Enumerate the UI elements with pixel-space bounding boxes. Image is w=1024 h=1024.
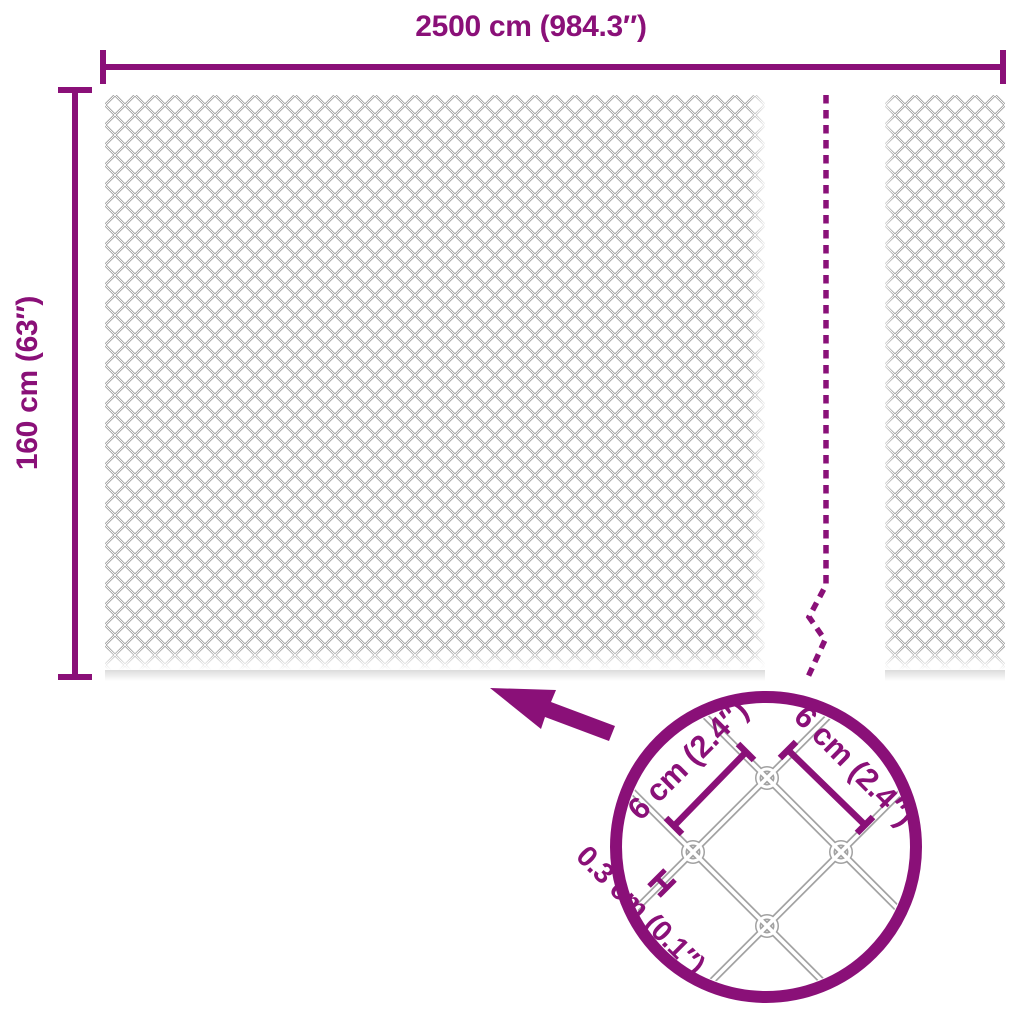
mesh-strip-left-edge-fade (885, 95, 895, 673)
mesh-bottom-shadow (105, 670, 765, 681)
mesh-panel-continuation (885, 95, 1005, 672)
height-dimension-line (58, 90, 92, 677)
fence-dimension-diagram: 2500 cm (984.3″) 160 cm (63″) 6 cm (2.4″… (0, 0, 1024, 1024)
height-dimension-label: 160 cm (63″) (11, 296, 45, 470)
break-dashed-line (808, 95, 826, 677)
mesh-panel-main (105, 95, 765, 672)
mesh-right-edge-fade (748, 95, 766, 673)
callout-arrow-icon (490, 688, 615, 741)
diagram-graphics (0, 0, 1024, 1024)
mesh-strip-bottom-shadow (885, 670, 1005, 681)
width-dimension-line (103, 50, 1003, 84)
width-dimension-label: 2500 cm (984.3″) (415, 10, 646, 44)
